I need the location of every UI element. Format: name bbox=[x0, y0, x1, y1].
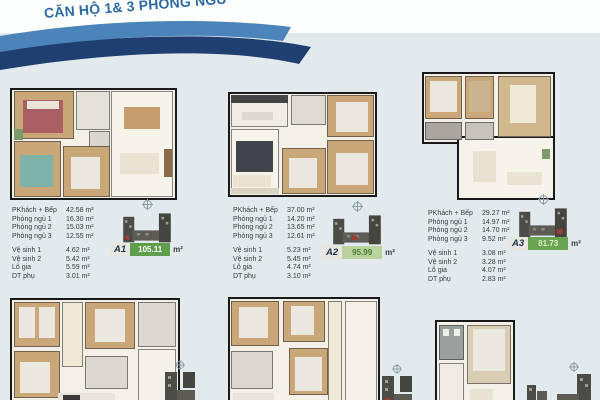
room-block bbox=[469, 81, 490, 112]
spec-label: PKhách + Bếp bbox=[233, 207, 287, 216]
room-block bbox=[507, 172, 542, 185]
spec-row: DT phụ3.10 m² bbox=[233, 273, 338, 282]
room-block bbox=[63, 395, 80, 400]
spec-row: Phòng ngủ 312.55 m² bbox=[12, 233, 117, 242]
unit-code: A1 bbox=[110, 243, 130, 256]
room-block bbox=[76, 91, 110, 130]
unit-area: 95.99 bbox=[342, 246, 382, 259]
spec-label: Phòng ngủ 3 bbox=[233, 233, 287, 242]
spec-label: Lô gia bbox=[428, 267, 482, 276]
keyplan-diagram bbox=[380, 374, 414, 400]
spec-row: Phòng ngủ 215.03 m² bbox=[12, 224, 117, 233]
keyplan-diagram bbox=[555, 372, 593, 400]
floor-plan-a1 bbox=[10, 88, 177, 200]
compass-icon bbox=[142, 199, 153, 210]
spec-label: Vệ sinh 2 bbox=[233, 256, 287, 265]
room-block bbox=[473, 329, 505, 371]
spec-label: DT phụ bbox=[233, 273, 287, 282]
room-block bbox=[295, 357, 322, 391]
room-block bbox=[20, 155, 53, 187]
spec-value: 42.58 m² bbox=[66, 207, 117, 216]
keyplan-cluster bbox=[377, 364, 417, 400]
room-block bbox=[345, 301, 376, 400]
room-block bbox=[457, 136, 555, 200]
spec-label: Lô gia bbox=[233, 264, 287, 273]
room-block bbox=[439, 363, 465, 400]
unit-badge: A3 81.73 m² bbox=[508, 237, 581, 250]
spec-value: 5.59 m² bbox=[66, 264, 117, 273]
spec-value: 2.83 m² bbox=[482, 276, 533, 285]
keyplan-diagram bbox=[163, 370, 197, 400]
spec-label: Phòng ngủ 3 bbox=[428, 236, 482, 245]
spec-row: Vệ sinh 25.42 m² bbox=[12, 256, 117, 265]
room-block bbox=[443, 329, 449, 336]
unit-code: A2 bbox=[322, 246, 342, 259]
room-block bbox=[542, 149, 550, 159]
unit-a1-keyplan bbox=[112, 199, 182, 244]
spec-label: Vệ sinh 2 bbox=[428, 259, 482, 268]
keyplan-diagram bbox=[119, 210, 175, 244]
spec-value: 3.28 m² bbox=[482, 259, 533, 268]
room-block bbox=[124, 107, 160, 129]
room-block bbox=[231, 95, 288, 103]
room-block bbox=[425, 122, 462, 140]
room-block bbox=[120, 153, 159, 175]
spec-value: 4.74 m² bbox=[287, 264, 338, 273]
spec-row: DT phụ2.83 m² bbox=[428, 276, 533, 285]
spec-row: Vệ sinh 14.62 m² bbox=[12, 247, 117, 256]
room-block bbox=[95, 309, 125, 342]
room-block bbox=[454, 329, 460, 336]
room-block bbox=[19, 307, 36, 338]
floor-plan-bottom-left bbox=[10, 298, 180, 400]
unit-a1-specs: PKhách + Bếp42.58 m² Phòng ngủ 116.30 m²… bbox=[12, 207, 117, 282]
spec-row: Vệ sinh 23.28 m² bbox=[428, 259, 533, 268]
floor-plan-a3 bbox=[422, 72, 555, 200]
room-block bbox=[138, 302, 176, 346]
spec-row: PKhách + Bếp42.58 m² bbox=[12, 207, 117, 216]
spec-row: Lô gia4.07 m² bbox=[428, 267, 533, 276]
spec-label: Phòng ngủ 3 bbox=[12, 233, 66, 242]
unit-badge: A1 105.11 m² bbox=[110, 243, 183, 256]
room-block bbox=[233, 175, 271, 187]
room-block bbox=[470, 389, 493, 400]
spec-label: Vệ sinh 2 bbox=[12, 256, 66, 265]
compass-icon bbox=[392, 364, 402, 374]
spec-label: Vệ sinh 1 bbox=[12, 247, 66, 256]
unit-a3-keyplan bbox=[508, 194, 578, 239]
room-block bbox=[336, 153, 368, 185]
spec-value: 3.08 m² bbox=[482, 250, 533, 259]
keyplan-fragment bbox=[524, 383, 550, 400]
keyplan-diagram bbox=[515, 205, 571, 239]
spec-value: 16.30 m² bbox=[66, 216, 117, 225]
room-block bbox=[510, 85, 537, 123]
unit-area: 81.73 bbox=[528, 237, 568, 250]
spec-label: Vệ sinh 1 bbox=[428, 250, 482, 259]
room-block bbox=[233, 393, 274, 400]
spec-label: PKhách + Bếp bbox=[428, 210, 482, 219]
unit-area-unit: m² bbox=[571, 239, 581, 248]
room-block bbox=[71, 157, 100, 189]
spec-value: 3.01 m² bbox=[66, 273, 117, 282]
unit-a2-keyplan bbox=[322, 201, 392, 246]
room-block bbox=[242, 112, 274, 120]
unit-area: 105.11 bbox=[130, 243, 170, 256]
room-block bbox=[291, 95, 326, 125]
keyplan-cluster bbox=[160, 360, 200, 400]
room-block bbox=[231, 188, 279, 194]
spec-label: Phòng ngủ 2 bbox=[428, 227, 482, 236]
spec-row: Vệ sinh 13.08 m² bbox=[428, 250, 533, 259]
floor-plan-bottom-middle bbox=[228, 297, 380, 400]
compass-icon bbox=[569, 362, 579, 372]
room-block bbox=[231, 351, 272, 389]
room-block bbox=[465, 122, 494, 140]
unit-area-unit: m² bbox=[173, 245, 183, 254]
room-block bbox=[164, 149, 172, 177]
room-block bbox=[430, 81, 457, 112]
room-block bbox=[336, 102, 368, 132]
spec-row: Lô gia4.74 m² bbox=[233, 264, 338, 273]
spec-value: 5.42 m² bbox=[66, 256, 117, 265]
spec-value: 4.07 m² bbox=[482, 267, 533, 276]
room-block bbox=[291, 306, 315, 335]
unit-badge: A2 95.99 m² bbox=[322, 246, 395, 259]
room-block bbox=[14, 129, 24, 140]
compass-icon bbox=[175, 360, 185, 370]
floor-plan-bottom-right bbox=[435, 320, 515, 400]
room-block bbox=[20, 362, 50, 393]
spec-label: Phòng ngủ 2 bbox=[233, 224, 287, 233]
spec-row: DT phụ3.01 m² bbox=[12, 273, 117, 282]
spec-label: DT phụ bbox=[12, 273, 66, 282]
spec-label: PKhách + Bếp bbox=[12, 207, 66, 216]
room-block bbox=[239, 307, 269, 338]
spec-label: Lô gia bbox=[12, 264, 66, 273]
keyplan-cluster bbox=[552, 362, 596, 400]
room-block bbox=[289, 158, 317, 188]
room-block bbox=[236, 141, 274, 171]
room-block bbox=[27, 101, 60, 110]
room-block bbox=[328, 301, 343, 400]
room-block bbox=[473, 151, 497, 182]
spec-value: 15.03 m² bbox=[66, 224, 117, 233]
floor-plan-a2 bbox=[228, 92, 377, 197]
spec-label: Vệ sinh 1 bbox=[233, 247, 287, 256]
room-block bbox=[39, 307, 56, 338]
spec-row: Lô gia5.59 m² bbox=[12, 264, 117, 273]
unit-code: A3 bbox=[508, 237, 528, 250]
spec-label: DT phụ bbox=[428, 276, 482, 285]
room-block bbox=[62, 302, 84, 366]
room-block bbox=[85, 356, 128, 389]
unit-area-unit: m² bbox=[385, 248, 395, 257]
keyplan-diagram bbox=[525, 383, 549, 400]
compass-icon bbox=[352, 201, 363, 212]
brochure-page: CĂN HỘ 1& 3 PHÒNG NGỦ bbox=[0, 0, 600, 400]
spec-value: 3.10 m² bbox=[287, 273, 338, 282]
spec-label: Phòng ngủ 2 bbox=[12, 224, 66, 233]
compass-icon bbox=[538, 194, 549, 205]
spec-value: 12.55 m² bbox=[66, 233, 117, 242]
keyplan-diagram bbox=[329, 212, 385, 246]
